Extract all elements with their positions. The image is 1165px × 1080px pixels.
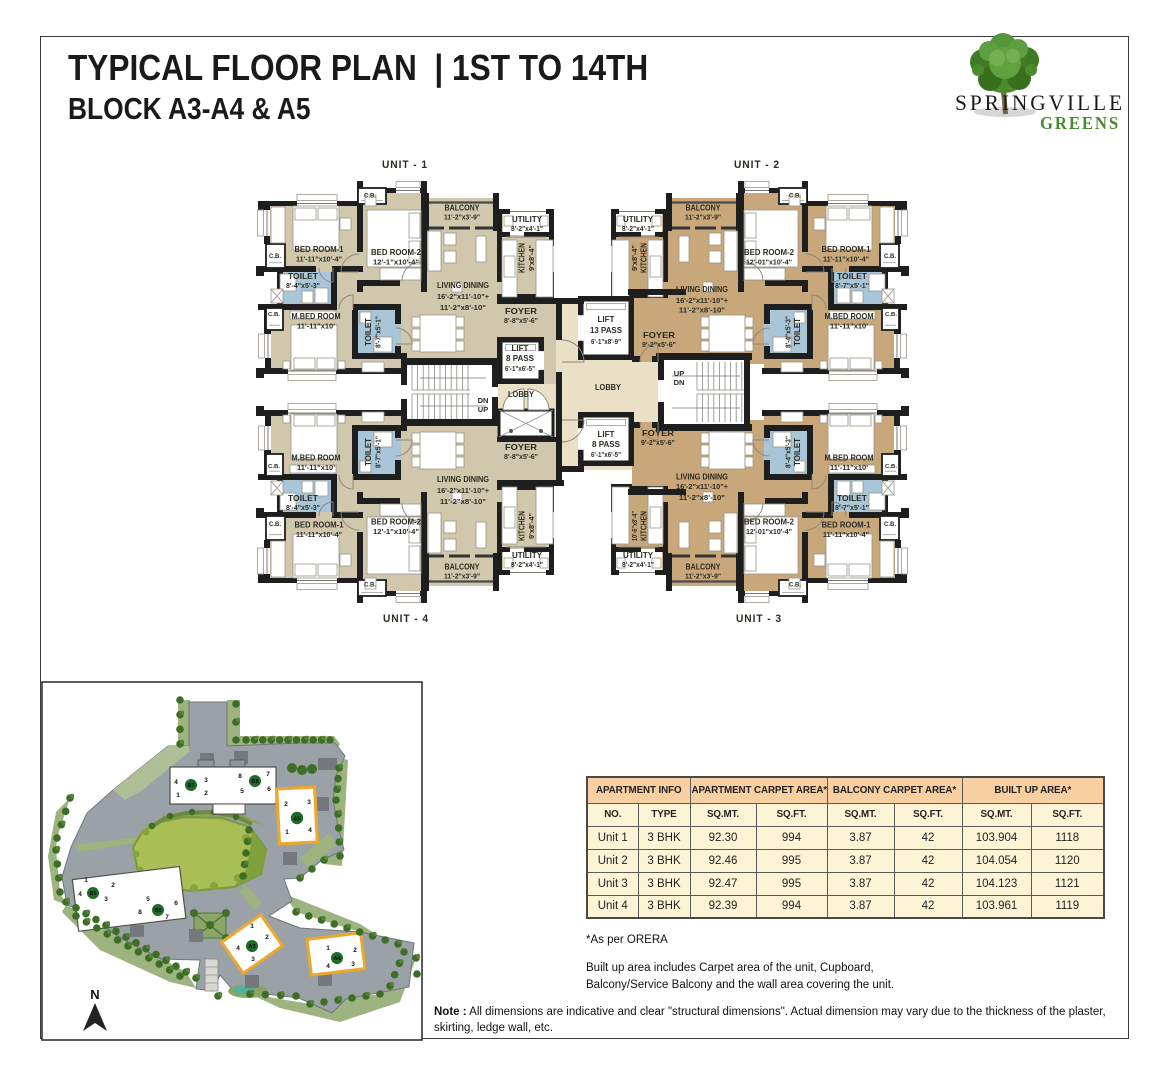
svg-text:10'-6"x8'-4": 10'-6"x8'-4": [630, 511, 639, 541]
svg-text:BALCONY: BALCONY: [445, 562, 480, 572]
svg-text:C.B.: C.B.: [268, 464, 281, 470]
svg-text:UNIT - 1: UNIT - 1: [382, 159, 428, 171]
svg-text:TOILET: TOILET: [792, 318, 802, 346]
svg-text:TOILET: TOILET: [288, 271, 318, 281]
svg-text:A4: A4: [333, 956, 341, 962]
svg-text:8'-8"x5'-6": 8'-8"x5'-6": [504, 452, 538, 461]
svg-text:BED ROOM-2: BED ROOM-2: [744, 517, 794, 527]
svg-text:4: 4: [78, 891, 82, 898]
svg-text:12'-01"x10'-4": 12'-01"x10'-4": [746, 258, 792, 267]
svg-text:1: 1: [176, 792, 180, 799]
svg-text:A3: A3: [248, 944, 255, 950]
svg-text:UNIT - 2: UNIT - 2: [734, 159, 780, 171]
svg-text:BED ROOM-2: BED ROOM-2: [371, 247, 421, 257]
svg-text:A5: A5: [293, 816, 300, 822]
svg-text:LIFT: LIFT: [598, 430, 615, 439]
svg-text:KITCHEN: KITCHEN: [517, 511, 527, 541]
svg-text:TOILET: TOILET: [363, 318, 373, 346]
svg-text:16'-2"x11'-10"+: 16'-2"x11'-10"+: [437, 292, 489, 301]
svg-text:M.BED ROOM: M.BED ROOM: [825, 453, 874, 463]
svg-text:UNIT - 4: UNIT - 4: [383, 613, 429, 625]
svg-text:4: 4: [308, 827, 312, 834]
svg-text:11'-2"x8'-10": 11'-2"x8'-10": [679, 493, 725, 502]
svg-text:KITCHEN: KITCHEN: [639, 511, 649, 541]
svg-text:BALCONY: BALCONY: [686, 203, 721, 213]
svg-text:C.B.: C.B.: [364, 583, 376, 589]
svg-text:DN: DN: [674, 378, 685, 387]
svg-text:2: 2: [111, 882, 115, 889]
svg-text:BED ROOM-2: BED ROOM-2: [371, 517, 421, 527]
svg-text:11'-11"x10': 11'-11"x10': [297, 463, 335, 472]
svg-text:4: 4: [236, 945, 240, 952]
svg-text:KITCHEN: KITCHEN: [517, 243, 527, 273]
svg-text:M.BED ROOM: M.BED ROOM: [292, 311, 341, 321]
svg-text:8 PASS: 8 PASS: [592, 440, 621, 449]
svg-text:4: 4: [174, 779, 178, 786]
svg-text:8'-2"x4'-1": 8'-2"x4'-1": [622, 224, 654, 233]
svg-text:9'x8'-4": 9'x8'-4": [527, 513, 536, 539]
svg-text:6: 6: [267, 786, 271, 793]
svg-text:11'-11"x10'-4": 11'-11"x10'-4": [296, 255, 342, 264]
svg-text:B5: B5: [89, 891, 96, 897]
svg-text:6'-1"x6'-5": 6'-1"x6'-5": [505, 364, 535, 373]
svg-text:DN: DN: [478, 396, 489, 405]
svg-text:11'-2"x3'-9": 11'-2"x3'-9": [685, 572, 721, 581]
svg-text:8'-4"x5'-3": 8'-4"x5'-3": [286, 281, 320, 290]
svg-text:1: 1: [285, 829, 289, 836]
svg-text:3: 3: [351, 961, 355, 968]
svg-text:11'-2"x3'-9": 11'-2"x3'-9": [685, 213, 721, 222]
svg-text:C.B.: C.B.: [789, 194, 801, 200]
svg-text:12'-01"x10'-4": 12'-01"x10'-4": [746, 527, 792, 536]
svg-text:C.B.: C.B.: [269, 522, 281, 528]
svg-text:UNIT - 3: UNIT - 3: [736, 613, 782, 625]
svg-text:C.B.: C.B.: [364, 194, 376, 200]
svg-text:3: 3: [307, 799, 311, 806]
svg-text:LIVING DINING: LIVING DINING: [676, 472, 728, 482]
svg-text:9'x8'-4": 9'x8'-4": [527, 245, 536, 271]
svg-text:11'-11"x10'-4": 11'-11"x10'-4": [296, 530, 342, 539]
svg-text:B6: B6: [154, 908, 161, 914]
svg-text:FOYER: FOYER: [643, 330, 675, 340]
svg-text:11'-11"x10'-4": 11'-11"x10'-4": [823, 255, 869, 264]
svg-text:3: 3: [104, 896, 108, 903]
svg-text:LIVING DINING: LIVING DINING: [437, 474, 489, 484]
svg-text:B8: B8: [251, 779, 258, 785]
svg-text:C.B.: C.B.: [268, 312, 281, 318]
svg-text:LIVING DINING: LIVING DINING: [437, 280, 489, 290]
svg-text:8: 8: [138, 909, 142, 916]
svg-text:16'-2"x11'-10"+: 16'-2"x11'-10"+: [437, 486, 489, 495]
svg-text:11'-11"x10': 11'-11"x10': [830, 322, 868, 331]
svg-text:11'-11"x10': 11'-11"x10': [297, 322, 335, 331]
svg-text:UTILITY: UTILITY: [623, 214, 653, 224]
svg-text:11'-2"x8'-10": 11'-2"x8'-10": [440, 497, 486, 506]
svg-text:8'-2"x4'-1": 8'-2"x4'-1": [622, 560, 654, 569]
svg-text:LIFT: LIFT: [598, 315, 615, 324]
svg-text:BALCONY: BALCONY: [686, 562, 721, 572]
svg-text:8'-7"x5'-1": 8'-7"x5'-1": [835, 281, 869, 290]
svg-text:UTILITY: UTILITY: [512, 214, 542, 224]
svg-text:2: 2: [265, 934, 269, 941]
svg-text:GREENS: GREENS: [1040, 113, 1120, 133]
svg-text:6'-1"x6'-5": 6'-1"x6'-5": [591, 450, 621, 459]
svg-text:BED ROOM-1: BED ROOM-1: [822, 520, 871, 530]
svg-text:9'-2"x5'-6": 9'-2"x5'-6": [642, 340, 676, 349]
svg-text:FOYER: FOYER: [505, 306, 537, 316]
svg-text:UP: UP: [674, 369, 684, 378]
svg-text:11'-2"x8'-10": 11'-2"x8'-10": [679, 306, 725, 315]
svg-text:3: 3: [204, 777, 208, 784]
svg-text:TOILET: TOILET: [288, 493, 318, 503]
svg-text:B7: B7: [187, 783, 194, 789]
svg-text:8'-7"x5'-1": 8'-7"x5'-1": [374, 436, 383, 468]
svg-text:BED ROOM-1: BED ROOM-1: [295, 244, 344, 254]
svg-text:11'-2"x3'-9": 11'-2"x3'-9": [444, 572, 480, 581]
svg-text:8: 8: [238, 773, 242, 780]
svg-text:TOILET: TOILET: [792, 438, 802, 466]
svg-text:FOYER: FOYER: [505, 442, 537, 452]
svg-text:1: 1: [326, 945, 330, 952]
svg-text:TOILET: TOILET: [363, 438, 373, 466]
svg-text:1: 1: [84, 877, 88, 884]
svg-text:C.B.: C.B.: [789, 583, 801, 589]
svg-text:8'-2"x4'-1": 8'-2"x4'-1": [511, 224, 543, 233]
svg-text:C.B.: C.B.: [885, 464, 898, 470]
svg-text:8'-2"x4'-1": 8'-2"x4'-1": [511, 560, 543, 569]
svg-text:BALCONY: BALCONY: [445, 203, 480, 213]
svg-text:6: 6: [174, 900, 178, 907]
svg-text:C.B.: C.B.: [884, 254, 896, 260]
svg-text:UTILITY: UTILITY: [512, 550, 542, 560]
svg-text:1: 1: [250, 923, 254, 930]
svg-text:11'-2"x3'-9": 11'-2"x3'-9": [444, 213, 480, 222]
svg-text:8'-4"x5'-3": 8'-4"x5'-3": [784, 316, 793, 348]
svg-text:11'-11"x10'-4": 11'-11"x10'-4": [823, 530, 869, 539]
svg-text:N: N: [90, 987, 99, 1002]
svg-text:8'-4"x5'-3": 8'-4"x5'-3": [286, 503, 320, 512]
svg-text:11'-2"x8'-10": 11'-2"x8'-10": [440, 303, 486, 312]
svg-text:2: 2: [204, 790, 208, 797]
svg-text:KITCHEN: KITCHEN: [639, 243, 649, 273]
svg-text:9'x8'-4": 9'x8'-4": [630, 245, 639, 271]
svg-text:C.B.: C.B.: [885, 312, 898, 318]
svg-text:5: 5: [146, 896, 150, 903]
svg-text:4: 4: [326, 963, 330, 970]
svg-text:9'-2"x5'-6": 9'-2"x5'-6": [641, 438, 675, 447]
svg-text:2: 2: [284, 801, 288, 808]
svg-text:C.B.: C.B.: [884, 522, 896, 528]
svg-text:LOBBY: LOBBY: [508, 389, 534, 399]
svg-text:8'-4"x5'-3": 8'-4"x5'-3": [784, 436, 793, 468]
svg-text:12'-1"x10'-4": 12'-1"x10'-4": [373, 527, 419, 536]
svg-text:SPRINGVILLE: SPRINGVILLE: [955, 90, 1125, 115]
svg-text:BED ROOM-2: BED ROOM-2: [744, 247, 794, 257]
svg-text:16'-2"x11'-10"+: 16'-2"x11'-10"+: [676, 296, 728, 305]
svg-text:3: 3: [251, 956, 255, 963]
svg-text:UP: UP: [478, 405, 488, 414]
svg-text:5: 5: [240, 788, 244, 795]
svg-text:8'-7"x5'-1": 8'-7"x5'-1": [374, 316, 383, 348]
svg-text:12'-1"x10'-4": 12'-1"x10'-4": [373, 258, 419, 267]
svg-text:6'-1"x8'-9": 6'-1"x8'-9": [591, 337, 621, 346]
svg-text:8'-7"x5'-1": 8'-7"x5'-1": [835, 503, 869, 512]
svg-text:LIFT: LIFT: [512, 344, 529, 353]
svg-text:TOILET: TOILET: [837, 271, 867, 281]
svg-text:16'-2"x11'-10"+: 16'-2"x11'-10"+: [676, 482, 728, 491]
svg-text:11'-11"x10': 11'-11"x10': [830, 463, 868, 472]
svg-text:7: 7: [266, 771, 270, 778]
svg-text:2: 2: [353, 947, 357, 954]
svg-text:UTILITY: UTILITY: [623, 550, 653, 560]
svg-text:C.B.: C.B.: [269, 254, 281, 260]
svg-text:8'-8"x5'-6": 8'-8"x5'-6": [504, 316, 538, 325]
svg-text:8 PASS: 8 PASS: [506, 354, 535, 363]
svg-text:M.BED ROOM: M.BED ROOM: [825, 311, 874, 321]
svg-text:TOILET: TOILET: [837, 493, 867, 503]
svg-text:FOYER: FOYER: [642, 428, 674, 438]
svg-text:BED ROOM-1: BED ROOM-1: [295, 520, 344, 530]
svg-text:7: 7: [165, 914, 169, 921]
svg-text:M.BED ROOM: M.BED ROOM: [292, 453, 341, 463]
svg-text:BED ROOM-1: BED ROOM-1: [822, 244, 871, 254]
svg-text:13 PASS: 13 PASS: [590, 326, 623, 335]
svg-text:LIVING DINING: LIVING DINING: [676, 284, 728, 294]
svg-text:LOBBY: LOBBY: [595, 382, 621, 392]
